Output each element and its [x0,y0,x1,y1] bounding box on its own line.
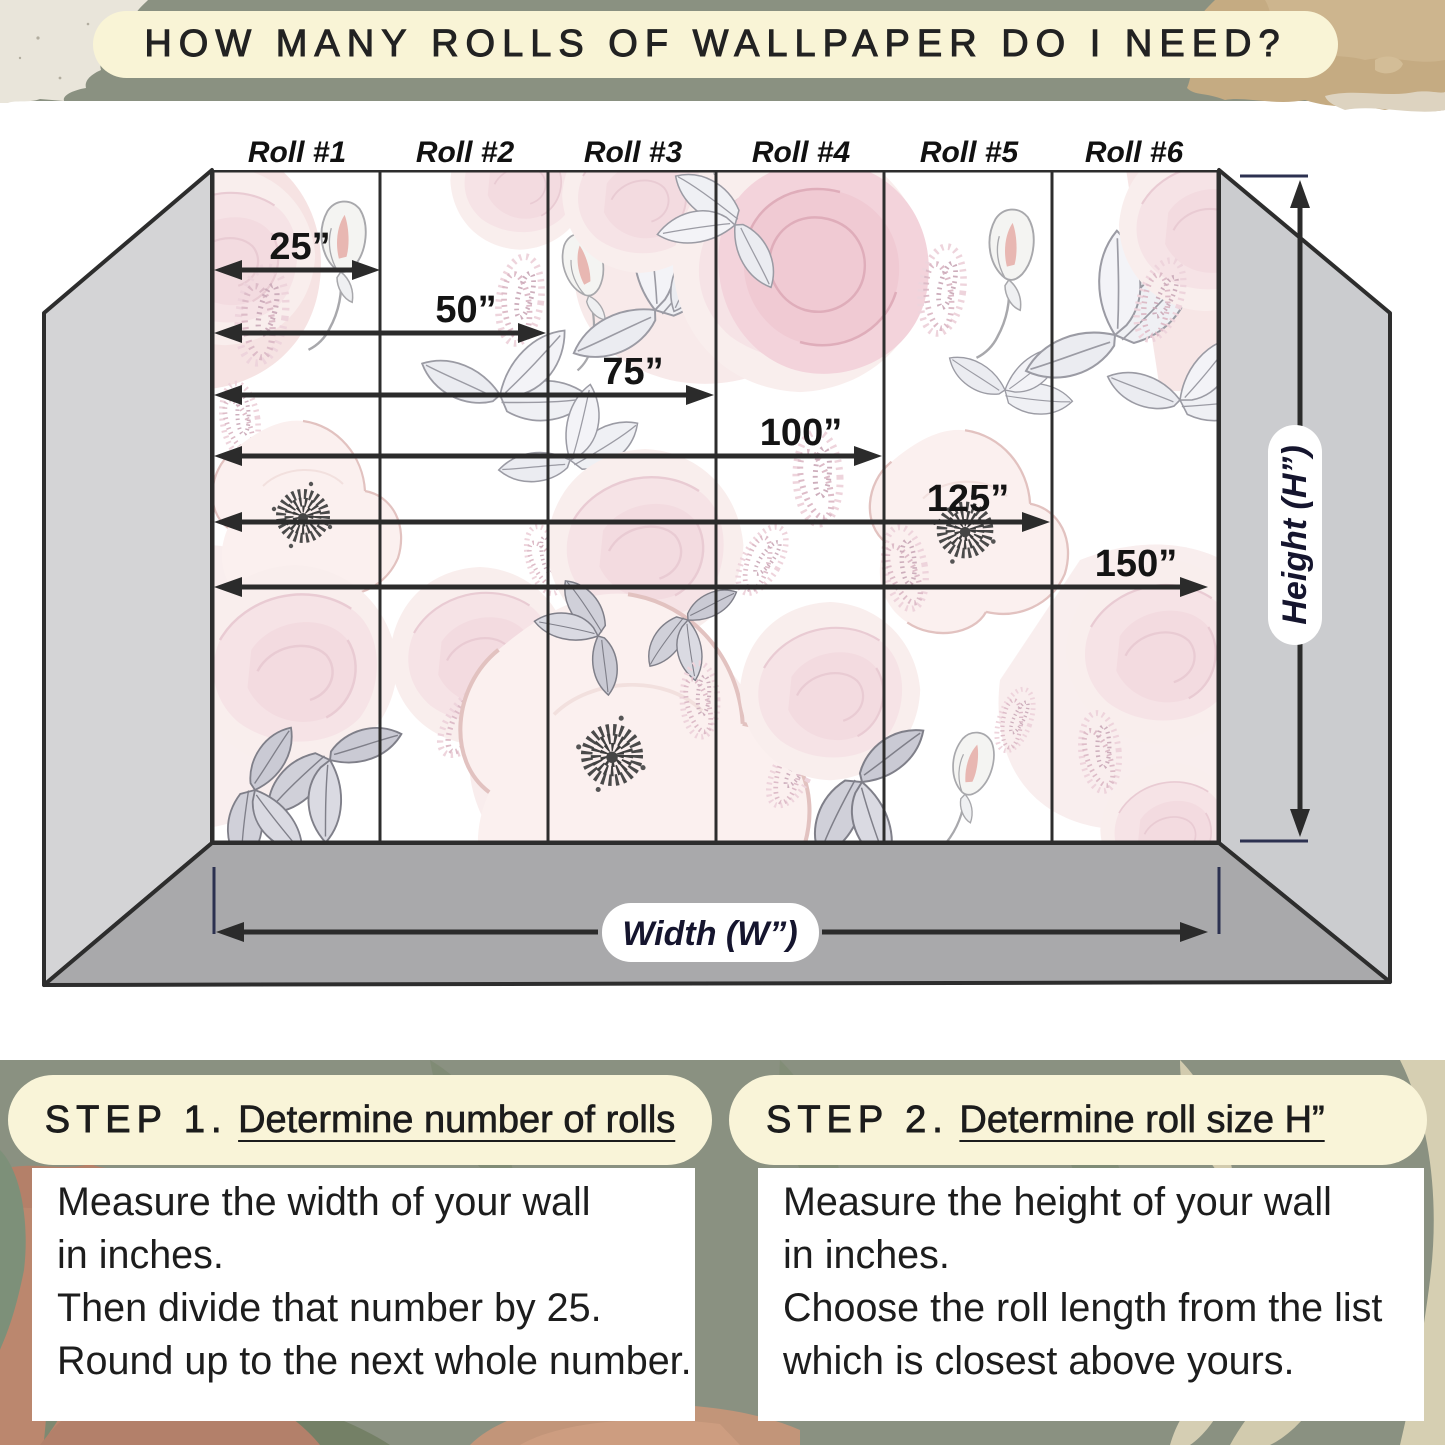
svg-text:Roll #1: Roll #1 [248,136,346,169]
svg-text:150”: 150” [1095,543,1177,585]
svg-text:Roll #5: Roll #5 [920,136,1020,169]
svg-text:Roll #3: Roll #3 [584,136,683,169]
svg-text:50”: 50” [435,289,496,331]
svg-text:Roll #4: Roll #4 [752,136,851,169]
svg-text:75”: 75” [602,351,663,393]
svg-text:125”: 125” [927,478,1009,520]
svg-text:Width (W”): Width (W”) [622,915,797,953]
svg-text:25”: 25” [269,226,330,268]
svg-text:Roll #6: Roll #6 [1085,136,1184,169]
svg-text:Height (H”): Height (H”) [1276,445,1314,624]
svg-text:100”: 100” [760,412,842,454]
svg-text:Roll #2: Roll #2 [416,136,515,169]
